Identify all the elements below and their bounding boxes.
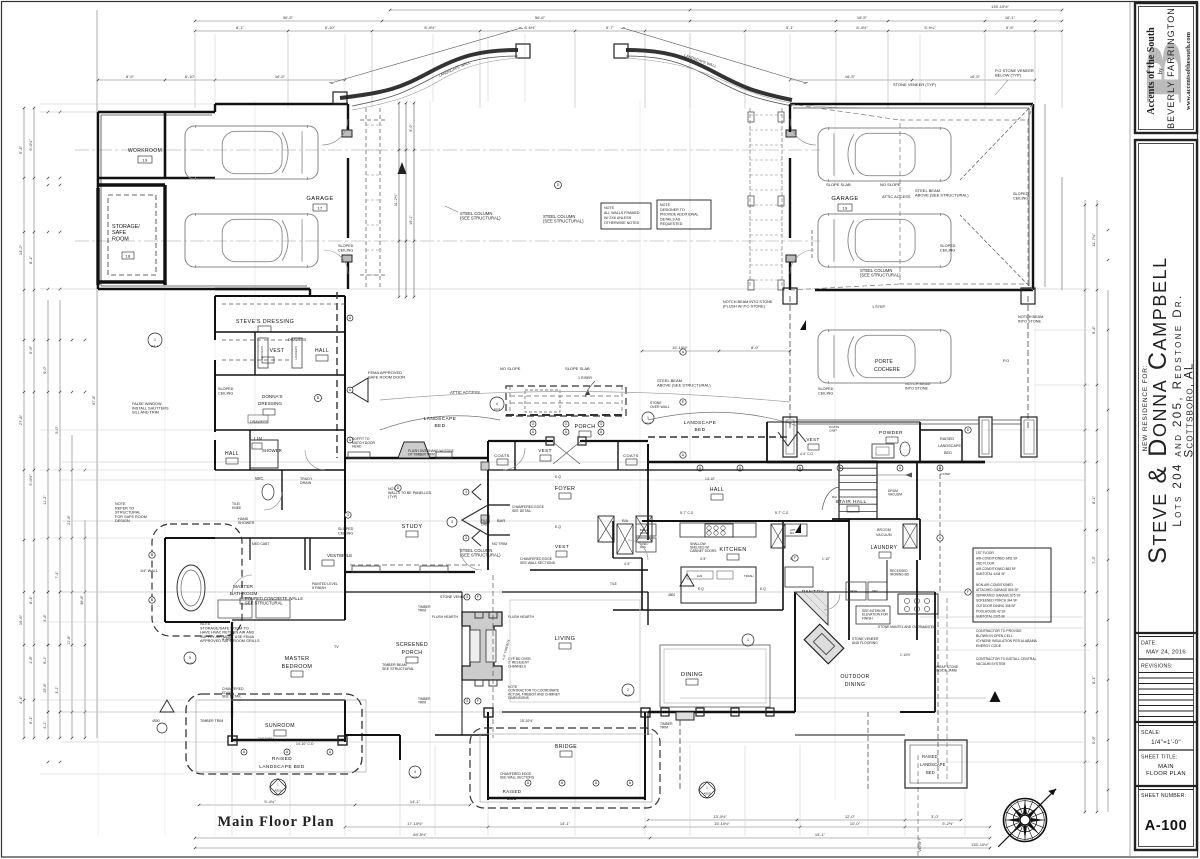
svg-text:SLOPE SLAB: SLOPE SLAB (565, 366, 590, 371)
svg-text:5'-2½": 5'-2½" (942, 821, 954, 826)
svg-text:LANDSCAPE: LANDSCAPE (684, 420, 717, 426)
svg-text:(TYP): (TYP) (388, 495, 397, 499)
svg-text:MASTER: MASTER (233, 584, 254, 590)
svg-text:BATHROOM: BATHROOM (230, 591, 257, 597)
svg-text:HALL: HALL (225, 451, 239, 457)
svg-text:CEILING: CEILING (338, 248, 353, 252)
svg-text:3'-1": 3'-1" (55, 686, 59, 694)
svg-text:A4.1: A4.1 (151, 344, 159, 348)
svg-text:CONTRACTOR TO INSTALL CENTRAL: CONTRACTOR TO INSTALL CENTRAL (976, 657, 1037, 661)
svg-text:MASTER: MASTER (285, 656, 310, 662)
svg-text:SHOWER: SHOWER (238, 521, 255, 525)
svg-text:17'-10½": 17'-10½" (407, 821, 423, 826)
svg-text:15'-6": 15'-6" (18, 614, 23, 625)
svg-text:5 FINISH: 5 FINISH (312, 586, 326, 590)
svg-text:ROOM: ROOM (112, 236, 129, 242)
svg-text:8'-4": 8'-4" (28, 595, 33, 604)
svg-text:TRIM: TRIM (418, 701, 426, 705)
svg-text:16'-5": 16'-5" (970, 74, 981, 79)
svg-text:19: 19 (142, 158, 148, 163)
svg-text:2: 2 (627, 688, 629, 692)
svg-text:LOUVERS: LOUVERS (294, 346, 298, 360)
svg-text:AND FLOORING: AND FLOORING (852, 641, 878, 645)
svg-text:Steve & Donna Campbell: Steve & Donna Campbell (1144, 256, 1172, 564)
svg-text:FINISH: FINISH (862, 616, 873, 620)
svg-text:VEST: VEST (538, 448, 552, 453)
svg-text:19: 19 (842, 206, 848, 211)
svg-text:www.accentsofthesouth.com: www.accentsofthesouth.com (1185, 31, 1192, 110)
svg-text:LANDSCAPE: LANDSCAPE (920, 762, 946, 767)
svg-text:3: 3 (347, 513, 349, 517)
svg-text:CHANNELS: CHANNELS (508, 664, 527, 668)
svg-text:SUNROOM: SUNROOM (265, 723, 295, 729)
svg-text:ATTACHED GARAGE 803 SF: ATTACHED GARAGE 803 SF (976, 588, 1018, 592)
svg-text:8'-6½": 8'-6½" (524, 25, 536, 30)
svg-text:GARAGE: GARAGE (306, 196, 333, 202)
svg-text:5'-9": 5'-9" (1091, 735, 1096, 744)
svg-text:D: D (397, 486, 400, 490)
svg-text:TIMBER TRIM: TIMBER TRIM (200, 719, 223, 723)
svg-text:BROOM: BROOM (877, 528, 891, 532)
svg-text:A11: A11 (412, 775, 418, 779)
svg-text:G: G (466, 595, 469, 599)
svg-text:4'-5": 4'-5" (624, 562, 630, 566)
svg-text:A500: A500 (703, 792, 710, 796)
svg-text:VEST: VEST (555, 544, 569, 550)
svg-text:15'-10½": 15'-10½" (714, 821, 730, 826)
svg-text:INSIDE JAMB: INSIDE JAMB (936, 669, 958, 673)
svg-text:R/A: R/A (832, 495, 837, 499)
svg-text:Main Floor Plan: Main Floor Plan (217, 814, 334, 830)
svg-text:ABOVE (SEE STRUCTURAL): ABOVE (SEE STRUCTURAL) (657, 382, 711, 387)
svg-text:SCALE:: SCALE: (1141, 730, 1161, 736)
svg-text:7'-3": 7'-3" (1091, 555, 1096, 564)
svg-text:SEE DETAIL: SEE DETAIL (512, 509, 531, 513)
svg-text:NO SLOPE: NO SLOPE (880, 182, 901, 187)
svg-text:SCREENED PORCH 344 SF: SCREENED PORCH 344 SF (976, 599, 1017, 603)
svg-text:A11: A11 (625, 693, 631, 697)
svg-text:CEILING: CEILING (218, 391, 233, 395)
svg-text:5'-4¾": 5'-4¾" (264, 799, 276, 804)
svg-text:NO TRIM: NO TRIM (492, 542, 507, 546)
svg-text:DRAIN: DRAIN (300, 481, 312, 485)
svg-text:DINING: DINING (845, 682, 866, 688)
svg-text:SUBTOTAL 2376: SUBTOTAL 2376 SF (976, 615, 1005, 619)
svg-text:2ND FLOOR: 2ND FLOOR (976, 562, 995, 566)
svg-text:COATS: COATS (494, 453, 509, 458)
svg-text:16'-5": 16'-5" (857, 15, 868, 20)
svg-text:LAUNDRY: LAUNDRY (871, 545, 898, 551)
svg-text:IRONING BD: IRONING BD (890, 573, 910, 577)
svg-text:G: G (466, 699, 469, 703)
svg-text:1/4"=1'-0": 1/4"=1'-0" (1151, 739, 1181, 746)
svg-text:9'-4": 9'-4" (1091, 325, 1096, 334)
svg-text:8'-1": 8'-1" (1091, 675, 1096, 684)
svg-text:7'-4": 7'-4" (55, 571, 59, 579)
svg-text:RAISED: RAISED (272, 756, 292, 762)
svg-text:1/4" WALL: 1/4" WALL (258, 737, 275, 741)
svg-text:5'-9¼": 5'-9¼" (924, 25, 936, 30)
svg-text:1ST FLOOR: 1ST FLOOR (976, 551, 994, 555)
svg-text:SAFE: SAFE (112, 230, 126, 236)
svg-text:5'-7" C.O: 5'-7" C.O (680, 511, 694, 515)
svg-text:NON-AIR-CONDITIONED: NON-AIR-CONDITIONED (976, 583, 1014, 587)
svg-text:CABT: CABT (481, 523, 490, 527)
svg-text:STONE VENEER (TYP): STONE VENEER (TYP) (893, 82, 936, 87)
svg-text:BED: BED (434, 423, 445, 429)
svg-text:A13: A13 (494, 407, 501, 411)
svg-text:1: 1 (747, 638, 749, 642)
svg-text:11'-7¾": 11'-7¾" (1091, 233, 1096, 247)
svg-text:KNEE: KNEE (232, 506, 242, 510)
svg-text:TRIM: TRIM (418, 609, 426, 613)
svg-text:5: 5 (189, 656, 191, 660)
svg-text:ENERGY CODE: ENERGY CODE (976, 644, 1002, 648)
svg-text:(SEE STRUCTURAL): (SEE STRUCTURAL) (543, 219, 584, 224)
svg-text:AIR-CONDITIONED 883 SF: AIR-CONDITIONED 883 SF (976, 567, 1016, 571)
svg-text:4'-1": 4'-1" (43, 721, 47, 729)
svg-text:5'-7" C.O: 5'-7" C.O (775, 511, 789, 515)
svg-text:CEILING: CEILING (1013, 196, 1028, 200)
svg-text:135'-10½": 135'-10½" (991, 4, 1010, 9)
svg-text:REVISIONS:: REVISIONS: (1141, 664, 1173, 670)
svg-text:OUTDOOR: OUTDOOR (840, 674, 869, 680)
svg-text:HALL: HALL (710, 487, 725, 493)
svg-text:14'-10" C.O: 14'-10" C.O (296, 742, 314, 746)
svg-text:ATTIC ACCESS: ATTIC ACCESS (882, 194, 911, 199)
svg-text:A13: A13 (645, 421, 651, 425)
svg-text:A500: A500 (274, 789, 281, 793)
svg-text:DINING: DINING (681, 672, 703, 678)
svg-text:1 STEP: 1 STEP (872, 305, 886, 309)
svg-text:16'-5": 16'-5" (275, 74, 286, 79)
svg-text:DRAWERS: DRAWERS (250, 420, 269, 424)
svg-text:MIL: MIL (790, 531, 795, 535)
svg-text:MAY 24, 2016: MAY 24, 2016 (1146, 650, 1186, 656)
svg-text:W/C: W/C (255, 476, 264, 481)
svg-text:DONNA'S: DONNA'S (262, 394, 283, 399)
svg-text:FOYER: FOYER (555, 486, 576, 492)
svg-text:KITCHEN: KITCHEN (719, 547, 746, 553)
svg-text:SHOWER: SHOWER (262, 448, 282, 453)
svg-text:36'-8": 36'-8" (80, 595, 84, 605)
svg-text:9'-0": 9'-0" (43, 366, 47, 374)
svg-text:BED: BED (926, 770, 935, 775)
svg-text:18: 18 (125, 254, 131, 259)
svg-text:FLUSH HEARTH: FLUSH HEARTH (432, 615, 458, 619)
svg-text:TV: TV (334, 645, 339, 649)
svg-text:BED: BED (944, 451, 952, 455)
svg-text:16'-5": 16'-5" (845, 74, 856, 79)
svg-text:5'-7": 5'-7" (606, 25, 615, 30)
svg-text:G: G (532, 422, 535, 426)
svg-text:SLOPE SLAB: SLOPE SLAB (826, 182, 851, 187)
svg-text:4'-5": 4'-5" (700, 557, 706, 561)
svg-text:G: G (600, 422, 603, 426)
svg-text:SCREENED: SCREENED (396, 642, 428, 648)
svg-text:SEE WALL SECTIONS: SEE WALL SECTIONS (500, 776, 535, 780)
svg-text:E.Q: E.Q (555, 525, 561, 529)
svg-text:1'-10½": 1'-10½" (900, 653, 911, 657)
svg-text:15'-1": 15'-1" (815, 832, 826, 837)
svg-text:TILE: TILE (610, 582, 617, 586)
svg-text:8'-1": 8'-1" (43, 656, 47, 664)
svg-text:MED CABT: MED CABT (252, 542, 270, 546)
svg-text:Lots 204 and 205, Redstone Dr.: Lots 204 and 205, Redstone Dr. (1172, 293, 1184, 526)
svg-text:4500: 4500 (152, 719, 160, 723)
svg-text:ELM: ELM (697, 574, 702, 578)
svg-text:8'-9½": 8'-9½" (424, 25, 436, 30)
svg-text:14'-1": 14'-1" (560, 821, 571, 826)
svg-text:SHEET NUMBER:: SHEET NUMBER: (1141, 793, 1186, 799)
svg-text:SEPARATED GARAGE 875 SF: SEPARATED GARAGE 875 SF (976, 593, 1021, 597)
svg-text:POOLHOUSE 42: POOLHOUSE 42 SF (976, 609, 1006, 613)
svg-text:LIVING: LIVING (555, 636, 576, 642)
svg-text:3: 3 (465, 536, 467, 540)
svg-text:D: D (557, 183, 560, 187)
svg-text:DETAILS AS: DETAILS AS (660, 217, 681, 221)
svg-text:3 STEP: 3 STEP (940, 472, 950, 476)
svg-text:31'-2½": 31'-2½" (394, 193, 398, 206)
svg-text:CEILING: CEILING (818, 391, 833, 395)
svg-text:4500: 4500 (668, 593, 675, 597)
svg-text:27'-8": 27'-8" (18, 414, 23, 425)
svg-text:5'-5": 5'-5" (1006, 25, 1015, 30)
svg-text:11'-8": 11'-8" (67, 635, 71, 645)
svg-text:SUBTOTAL 4434: SUBTOTAL 4434 SF (976, 572, 1005, 576)
svg-text:AIR-CONDITIONED 3451 SF: AIR-CONDITIONED 3451 SF (976, 556, 1018, 560)
svg-text:ICYNENE INSULATION PER ALABAMA: ICYNENE INSULATION PER ALABAMA (976, 639, 1038, 643)
svg-text:PROVIDE ADDITIONAL: PROVIDE ADDITIONAL (660, 213, 699, 217)
svg-text:PORCH: PORCH (402, 650, 423, 656)
svg-text:OVER WALL: OVER WALL (650, 405, 670, 409)
svg-text:VACUUM: VACUUM (876, 533, 892, 537)
svg-text:BLOWN IN OPEN CELL: BLOWN IN OPEN CELL (976, 634, 1013, 638)
svg-text:VESTIBULE: VESTIBULE (327, 553, 352, 558)
svg-text:14'-1": 14'-1" (410, 799, 421, 804)
svg-text:FLUSH HEARTH: FLUSH HEARTH (508, 615, 534, 619)
svg-text:RAISED: RAISED (503, 789, 522, 794)
svg-text:8'-1": 8'-1" (236, 25, 245, 30)
svg-text:LANDSCAPE: LANDSCAPE (938, 444, 961, 448)
svg-text:4: 4 (465, 490, 467, 494)
svg-text:A-100: A-100 (1145, 818, 1188, 834)
svg-text:DESIGN: DESIGN (115, 519, 130, 523)
svg-text:STEVE'S DRESSING: STEVE'S DRESSING (236, 319, 294, 325)
svg-text:SAFE ROOM DOOR: SAFE ROOM DOOR (368, 374, 405, 379)
svg-text:135'-10½": 135'-10½" (971, 842, 990, 847)
svg-text:36'-5": 36'-5" (283, 15, 294, 20)
svg-text:BED: BED (507, 796, 517, 801)
svg-text:FLOOR PLAN: FLOOR PLAN (1146, 771, 1186, 777)
svg-text:DRESSING: DRESSING (258, 401, 282, 406)
svg-text:10'-0": 10'-0" (850, 821, 861, 826)
svg-text:Scottsboro, AL: Scottsboro, AL (1184, 363, 1196, 458)
svg-text:CABINET DOORS: CABINET DOORS (690, 549, 716, 553)
svg-text:1/4" WALL: 1/4" WALL (140, 569, 158, 573)
svg-text:R/A: R/A (622, 519, 629, 523)
svg-text:8'-5": 8'-5" (126, 74, 135, 79)
svg-text:SEE STRUCTURAL: SEE STRUCTURAL (382, 667, 414, 671)
svg-text:OUTDOOR DINING 308 SF: OUTDOOR DINING 308 SF (976, 604, 1016, 608)
svg-text:HEAD: HEAD (352, 445, 362, 449)
svg-text:15'-10½": 15'-10½" (672, 345, 688, 350)
svg-text:9'-0": 9'-0" (409, 124, 413, 132)
svg-text:REQUESTED: REQUESTED (660, 222, 683, 226)
svg-text:WORKROOM: WORKROOM (128, 148, 162, 154)
svg-text:LANDSCAPE: LANDSCAPE (424, 416, 457, 422)
svg-text:SILL AND TRIM: SILL AND TRIM (132, 411, 159, 415)
svg-text:(SEE STRUCTURAL): (SEE STRUCTURAL) (460, 553, 501, 558)
svg-text:GARAGE: GARAGE (831, 196, 858, 202)
svg-text:BEVERLY FARRINGTON: BEVERLY FARRINGTON (1166, 7, 1176, 129)
svg-text:4'-6" C.O: 4'-6" C.O (800, 452, 813, 456)
svg-text:BEDROOM: BEDROOM (282, 664, 313, 670)
svg-text:8'-1": 8'-1" (28, 255, 33, 264)
svg-text:ALL WALLS FRAMED: ALL WALLS FRAMED (604, 211, 640, 215)
svg-text:Accents of the South: Accents of the South (1146, 27, 1157, 115)
svg-text:COCHERE: COCHERE (874, 367, 900, 373)
svg-text:6'-1": 6'-1" (28, 715, 33, 724)
svg-text:14'-2": 14'-2" (18, 244, 23, 255)
svg-text:DATE:: DATE: (1141, 641, 1157, 647)
svg-text:8'-1": 8'-1" (1091, 495, 1096, 504)
svg-text:BED: BED (694, 427, 705, 433)
svg-text:SHEET TITLE:: SHEET TITLE: (1141, 755, 1178, 761)
svg-text:3: 3 (451, 520, 453, 524)
svg-text:TRIM: TRIM (660, 726, 668, 730)
svg-text:DRAWERS: DRAWERS (288, 338, 307, 342)
svg-text:E.Q: E.Q (555, 475, 561, 479)
svg-text:5'-0½": 5'-0½" (28, 474, 33, 486)
svg-text:G: G (565, 422, 568, 426)
svg-text:PORCH: PORCH (575, 424, 596, 430)
svg-text:6'-0¾": 6'-0¾" (28, 139, 33, 151)
svg-text:5'-4": 5'-4" (18, 145, 23, 154)
svg-text:21'-6": 21'-6" (67, 515, 71, 525)
svg-text:STORAGE/: STORAGE/ (112, 224, 140, 230)
svg-text:BRIDGE: BRIDGE (555, 744, 577, 750)
svg-text:VEST: VEST (806, 437, 819, 442)
svg-text:E.Q: E.Q (760, 587, 766, 591)
svg-text:4'-4": 4'-4" (18, 695, 23, 704)
svg-text:16'-1": 16'-1" (409, 215, 413, 225)
svg-text:CONTRACTOR TO PROVIDE: CONTRACTOR TO PROVIDE (976, 629, 1022, 633)
svg-text:VERIFY: VERIFY (918, 838, 922, 852)
svg-text:17: 17 (317, 206, 323, 211)
svg-text:INTO STONE: INTO STONE (905, 386, 929, 390)
svg-text:RAISED: RAISED (922, 754, 938, 759)
svg-text:POWDER: POWDER (879, 430, 903, 436)
svg-text:ABOVE (SEE STRUCTURAL): ABOVE (SEE STRUCTURAL) (915, 192, 969, 197)
svg-text:13'-0½": 13'-0½" (713, 814, 727, 819)
svg-text:CEILING: CEILING (940, 248, 955, 252)
svg-text:D: D (967, 428, 970, 432)
svg-text:8'-4½": 8'-4½" (856, 25, 868, 30)
svg-text:4: 4 (414, 770, 416, 774)
svg-text:15'-10½": 15'-10½" (520, 719, 534, 723)
svg-text:STUDY: STUDY (402, 524, 423, 530)
svg-text:BELOW (TYP): BELOW (TYP) (995, 72, 1022, 77)
svg-text:TRASH: TRASH (744, 574, 753, 578)
svg-text:6'-10": 6'-10" (185, 74, 196, 79)
svg-text:16'-1": 16'-1" (1005, 15, 1016, 20)
svg-text:OTHERWISE NOTED: OTHERWISE NOTED (604, 221, 640, 225)
svg-text:A11: A11 (187, 661, 193, 665)
svg-text:1 RISER: 1 RISER (578, 376, 592, 380)
svg-text:OF TIMBER TRIM: OF TIMBER TRIM (408, 453, 435, 457)
svg-text:PANS: PANS (640, 531, 647, 535)
svg-text:P.O: P.O (1003, 359, 1009, 363)
svg-text:8'-0": 8'-0" (751, 345, 760, 350)
svg-text:1'-10": 1'-10" (822, 557, 830, 561)
svg-text:A10: A10 (745, 643, 751, 647)
svg-text:BAR: BAR (497, 518, 505, 523)
svg-text:6'-10": 6'-10" (325, 25, 336, 30)
svg-text:VACUUM: VACUUM (888, 493, 902, 497)
svg-text:E.Q: E.Q (698, 587, 704, 591)
svg-text:LANDSCAPE BED: LANDSCAPE BED (259, 764, 305, 770)
svg-text:DIMENSIONS: DIMENSIONS (508, 696, 530, 700)
svg-text:69'-5½": 69'-5½" (413, 832, 427, 837)
svg-text:STAIR HALL: STAIR HALL (835, 499, 866, 505)
svg-text:MAIN: MAIN (1158, 764, 1174, 770)
svg-text:1'-8": 1'-8" (28, 655, 33, 664)
svg-text:INTO STONE: INTO STONE (1018, 319, 1042, 323)
svg-text:STONE MANTEL AND OVERMANTEL: STONE MANTEL AND OVERMANTEL (878, 625, 935, 629)
svg-text:15'-6": 15'-6" (43, 683, 47, 693)
svg-text:5'-0": 5'-0" (55, 426, 59, 434)
svg-text:COATS: COATS (623, 453, 638, 458)
svg-text:14'-10": 14'-10" (705, 477, 716, 481)
svg-text:by: by (1157, 67, 1164, 74)
svg-text:12'-0": 12'-0" (845, 814, 856, 819)
svg-text:(SEE STRUCTURAL): (SEE STRUCTURAL) (460, 216, 501, 221)
svg-text:(SEE STRUCTURAL): (SEE STRUCTURAL) (860, 273, 901, 278)
svg-text:SEE WALL SECTIONS: SEE WALL SECTIONS (520, 561, 556, 565)
svg-text:RAISED: RAISED (940, 437, 954, 441)
svg-text:NOTE: NOTE (660, 203, 671, 207)
svg-text:NO SLOPE: NO SLOPE (500, 366, 521, 371)
svg-text:5'-1": 5'-1" (786, 25, 795, 30)
svg-text:1: 1 (154, 338, 156, 342)
svg-text:HALL: HALL (315, 348, 329, 354)
svg-text:5'-9": 5'-9" (28, 345, 33, 354)
svg-text:57'-8": 57'-8" (92, 395, 96, 405)
svg-text:CABT: CABT (829, 428, 837, 432)
svg-text:4'-6": 4'-6" (43, 614, 47, 622)
svg-text:(FLUSH W/ P.O STONE): (FLUSH W/ P.O STONE) (723, 304, 766, 308)
svg-text:VEST: VEST (270, 348, 285, 354)
svg-text:SEE STRUCTURAL: SEE STRUCTURAL (245, 601, 283, 606)
svg-text:56'-6": 56'-6" (535, 15, 546, 20)
svg-text:W/ 2X6 UNLESS: W/ 2X6 UNLESS (604, 216, 632, 220)
svg-text:NOTE: NOTE (604, 206, 615, 210)
svg-text:4: 4 (496, 402, 498, 406)
svg-text:VACUUM SYSTEM: VACUUM SYSTEM (976, 662, 1006, 666)
svg-text:3'-0": 3'-0" (931, 814, 940, 819)
svg-text:DESIGNER TO: DESIGNER TO (660, 208, 685, 212)
svg-text:SEE DETAIL: SEE DETAIL (222, 695, 241, 699)
svg-text:PORTE: PORTE (875, 359, 893, 365)
svg-text:11'-2": 11'-2" (43, 495, 47, 505)
